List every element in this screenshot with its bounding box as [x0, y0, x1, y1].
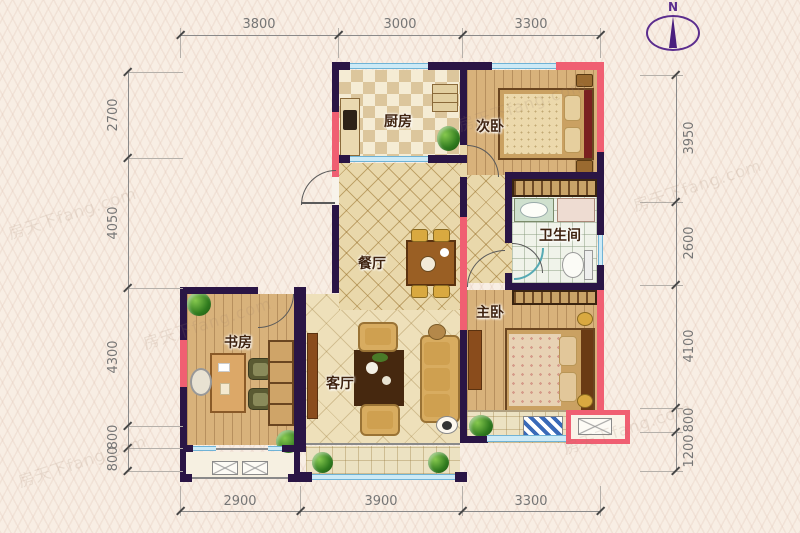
balcony-window-symbol [242, 461, 268, 475]
kitchen-shelf [432, 84, 458, 112]
master-bedroom-wardrobe [512, 290, 597, 305]
dimension-label: 4300 [107, 317, 121, 397]
extension-line [640, 75, 683, 76]
window [492, 63, 556, 69]
kitchen-plant-icon [437, 126, 460, 151]
master-bedroom-label: 主卧 [462, 303, 518, 323]
living-balcony-plant-icon [428, 452, 449, 473]
study-balcony-floor [186, 452, 294, 478]
toilet-tank [584, 250, 593, 280]
dimension-label: 3900 [341, 495, 421, 509]
wall-segment [294, 287, 306, 294]
balcony-mat [523, 416, 563, 437]
side-table [428, 324, 446, 340]
wall-accent [597, 62, 604, 152]
wall-segment [505, 179, 512, 243]
sliding-door-line [306, 443, 460, 445]
window [487, 435, 568, 442]
bathroom-label: 卫生间 [528, 226, 592, 246]
wall-segment [180, 387, 187, 452]
wall-segment [505, 172, 604, 179]
dimension-line-left [128, 72, 129, 471]
sofa [420, 335, 460, 423]
wall-segment [282, 445, 306, 452]
dining-chair [433, 229, 450, 242]
watermark: 房天下fang.com [630, 152, 765, 216]
entrance-door-leaf [301, 202, 335, 204]
balcony-window-symbol [212, 461, 238, 475]
desk-chair [190, 368, 212, 396]
wall-segment [332, 205, 339, 293]
window [193, 446, 216, 451]
secondary-bedroom-wardrobe [512, 179, 597, 197]
floor-plan-canvas: 厨房 次卧 餐厅 卫生间 主卧 书房 客厅 3800 3000 3300 290… [0, 0, 800, 533]
plate-icon [382, 376, 391, 385]
flower-icon [372, 353, 388, 362]
window [268, 446, 282, 451]
secondary-bed-pillow [564, 95, 581, 121]
sliding-door-line [216, 448, 268, 450]
dimension-label: 2700 [107, 75, 121, 155]
toilet [562, 252, 584, 278]
wall-segment [300, 472, 312, 482]
kitchen-pass-through [350, 156, 428, 162]
guest-chair-cushion [253, 393, 268, 406]
window [350, 63, 428, 69]
dimension-label: 3000 [360, 18, 440, 32]
dimension-line-bottom [180, 511, 600, 512]
wall-segment [288, 474, 300, 482]
kitchen-label: 厨房 [370, 112, 426, 132]
extension-line [128, 426, 183, 427]
secondary-bedroom-label: 次卧 [462, 117, 518, 137]
sofa-cushion [424, 368, 450, 391]
study-plant-icon [187, 292, 211, 316]
wall-segment [428, 155, 467, 163]
master-nightstand [577, 394, 593, 408]
armchair-cushion [365, 328, 391, 345]
study-desk [210, 353, 246, 413]
compass: N [640, 0, 710, 56]
master-balcony-plant-icon [469, 415, 493, 437]
extension-line [640, 408, 683, 409]
balcony-rail-line [182, 477, 298, 479]
dining-chair [433, 285, 450, 298]
wall-segment [460, 330, 467, 443]
master-bed-pillow [559, 336, 577, 366]
desk-paper [220, 383, 230, 395]
wall-accent [597, 290, 604, 412]
compass-north-label: N [664, 0, 682, 14]
dimension-label: 2900 [200, 495, 280, 509]
dining-chair [411, 285, 428, 298]
bookshelf [268, 340, 294, 426]
extension-line [128, 471, 183, 472]
watermark: 房天下fang.com [15, 428, 150, 492]
dimension-label: 3950 [683, 98, 697, 178]
wall-segment [294, 294, 306, 452]
secondary-bed-headboard [584, 90, 592, 158]
side-table-top [442, 421, 452, 430]
wall-accent [332, 112, 339, 177]
armchair-cushion [367, 411, 393, 429]
window [598, 235, 603, 265]
dining-plate [420, 256, 436, 272]
desk-paper [218, 363, 230, 372]
dimension-label: 800 [107, 419, 121, 499]
kitchen-sink [343, 110, 357, 130]
dining-chair [411, 229, 428, 242]
dimension-label: 1200 [683, 411, 697, 491]
wall-segment [460, 177, 467, 217]
extension-line [640, 202, 683, 203]
wall-segment [460, 436, 488, 443]
wall-segment [180, 294, 187, 340]
study-label: 书房 [210, 333, 266, 353]
window [312, 474, 455, 480]
master-tv-cabinet [468, 330, 482, 390]
wall-segment [180, 474, 192, 482]
sofa-cushion [424, 342, 450, 365]
dimension-line-right [676, 75, 677, 471]
plate-icon [366, 362, 378, 374]
wall-accent [180, 340, 187, 387]
wall-segment [180, 287, 258, 294]
extension-line [128, 72, 183, 73]
secondary-bed-pillow [564, 127, 581, 153]
dimension-label: 4050 [107, 183, 121, 263]
master-bed-quilt [509, 334, 561, 406]
living-balcony-plant-icon [312, 452, 333, 473]
bathtub [557, 198, 595, 222]
extension-line [640, 285, 683, 286]
dimension-label: 4100 [683, 306, 697, 386]
wall-segment [428, 62, 492, 70]
balcony-window-symbol [578, 418, 612, 435]
extension-line [640, 432, 683, 433]
wall-segment [505, 283, 604, 290]
dining-table [406, 240, 456, 286]
entrance-door-arc [301, 170, 336, 205]
sofa-cushion [424, 394, 450, 417]
master-bed-pillow [559, 372, 577, 402]
wall-segment [332, 62, 339, 112]
dining-plate [440, 248, 449, 257]
extension-line [128, 158, 183, 159]
armchair [360, 404, 400, 436]
master-nightstand [577, 312, 593, 326]
dimension-line-top [180, 35, 600, 36]
dimension-label: 2600 [683, 203, 697, 283]
compass-needle-icon [669, 16, 677, 48]
dining-room-label: 餐厅 [344, 254, 400, 274]
bathroom-sink [520, 202, 548, 218]
extension-line [128, 448, 183, 449]
balcony-divider-line [467, 410, 567, 412]
extension-line [640, 471, 683, 472]
guest-chair-cushion [253, 363, 268, 376]
dimension-label: 3800 [219, 18, 299, 32]
living-room-label: 客厅 [312, 374, 368, 394]
nightstand [576, 74, 593, 87]
dimension-label: 3300 [491, 495, 571, 509]
wall-segment [597, 152, 604, 235]
armchair [358, 322, 398, 352]
wall-segment [455, 472, 467, 482]
extension-line [128, 288, 183, 289]
dimension-label: 3300 [491, 18, 571, 32]
